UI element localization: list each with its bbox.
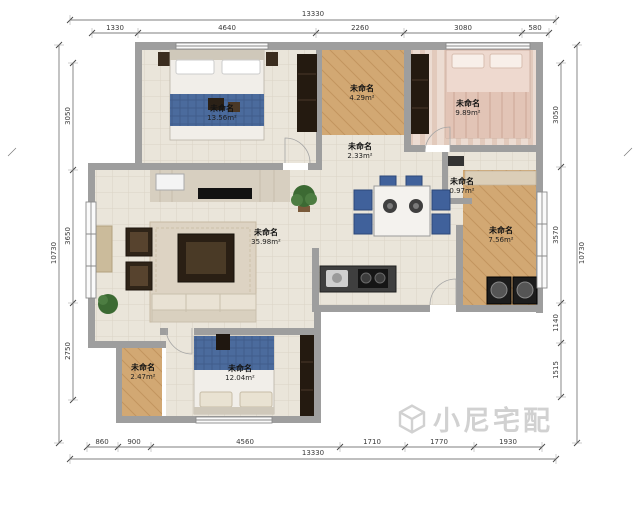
dim-left-segment-1: 3650: [64, 227, 72, 245]
floorplan-viewer: 未命名 13.56m² 未命名 4.29m² 未命名 9.89m² 未命名 2.…: [0, 0, 640, 505]
dim-right-segment-3: 1515: [552, 361, 560, 379]
dim-bottom-segment-3: 1710: [363, 438, 381, 446]
room-label-bedroom-top-right: 未命名 9.89m²: [455, 99, 480, 117]
room-name: 未命名: [225, 364, 255, 374]
kitchen-counter: [320, 266, 396, 292]
room-area: 0.97m²: [449, 187, 474, 195]
wardrobe-bottom: [300, 335, 314, 416]
cube-logo-icon: [396, 403, 428, 435]
room-area: 7.56m²: [488, 236, 513, 244]
dim-bottom-segment-0: 860: [95, 438, 108, 446]
room-area: 12.04m²: [225, 374, 255, 382]
dim-right-overall: 10730: [578, 242, 586, 264]
dim-top-overall: 13330: [302, 10, 324, 18]
room-area: 4.29m²: [349, 94, 374, 102]
room-label-entry-nook: 未命名 0.97m²: [449, 177, 474, 195]
bed-top-right: [446, 50, 530, 138]
dim-top-segment-3: 3080: [454, 24, 472, 32]
room-area: 13.56m²: [207, 114, 237, 122]
nook-fixture: [448, 156, 464, 166]
dim-right-segment-0: 3050: [552, 106, 560, 124]
dim-right-segment-2: 1140: [552, 314, 560, 332]
dim-top-segment-2: 2260: [351, 24, 369, 32]
room-label-room-top-middle: 未命名 4.29m²: [349, 84, 374, 102]
tv-wall: [150, 170, 290, 202]
dim-right-segment-1: 3570: [552, 226, 560, 244]
dim-left-segment-2: 2750: [64, 342, 72, 360]
dim-bottom-segment-4: 1770: [430, 438, 448, 446]
dim-top-segment-0: 1330: [106, 24, 124, 32]
room-name: 未命名: [347, 142, 372, 152]
room-name: 未命名: [207, 104, 237, 114]
room-area: 2.33m²: [347, 152, 372, 160]
room-name: 未命名: [349, 84, 374, 94]
watermark: 小尼宅配: [396, 399, 553, 438]
room-area: 35.98m²: [251, 238, 281, 246]
dim-bottom-segment-5: 1930: [499, 438, 517, 446]
room-label-bedroom-bottom: 未命名 12.04m²: [225, 364, 255, 382]
room-label-room-bottom-left: 未命名 2.47m²: [130, 363, 155, 381]
dim-bottom-overall: 13330: [302, 449, 324, 457]
dim-top-segment-4: 580: [528, 24, 541, 32]
dim-left-overall: 10730: [50, 242, 58, 264]
room-name: 未命名: [449, 177, 474, 187]
room-area: 2.47m²: [130, 373, 155, 381]
dim-bottom-segment-2: 4560: [236, 438, 254, 446]
dim-left-segment-0: 3050: [64, 107, 72, 125]
wardrobe-top-left: [297, 54, 317, 132]
room-label-living-room: 未命名 35.98m²: [251, 228, 281, 246]
room-name: 未命名: [130, 363, 155, 373]
dim-top-segment-1: 4640: [218, 24, 236, 32]
wardrobe-top-right: [411, 54, 429, 134]
room-area: 9.89m²: [455, 109, 480, 117]
room-name: 未命名: [251, 228, 281, 238]
watermark-text: 小尼宅配: [433, 399, 553, 438]
dim-bottom-segment-1: 900: [127, 438, 140, 446]
bed-top-left: [158, 50, 278, 140]
room-label-hallway: 未命名 2.33m²: [347, 142, 372, 160]
room-label-room-right: 未命名 7.56m²: [488, 226, 513, 244]
room-name: 未命名: [488, 226, 513, 236]
room-name: 未命名: [455, 99, 480, 109]
room-label-bedroom-top-left: 未命名 13.56m²: [207, 104, 237, 122]
